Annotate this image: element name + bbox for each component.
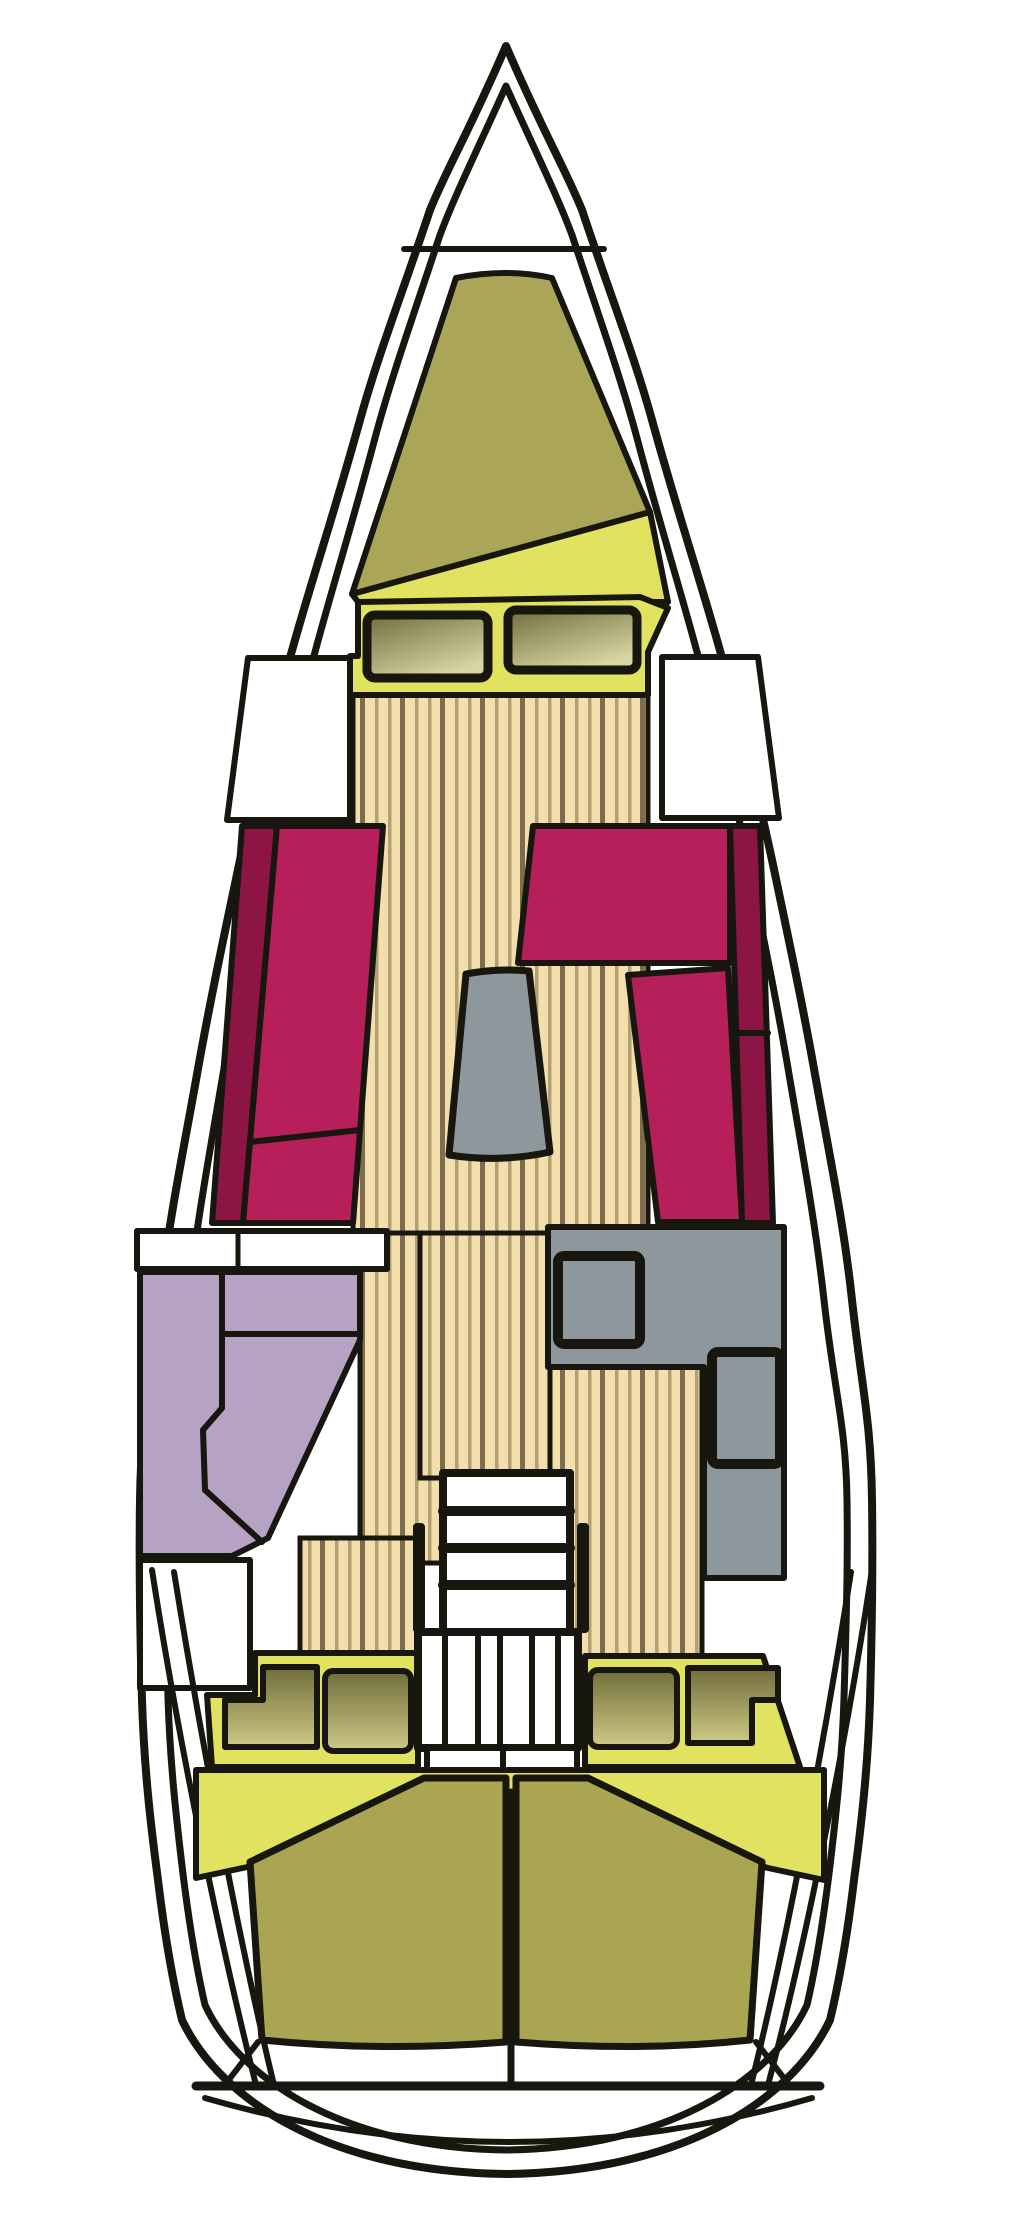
floorplan-svg [0, 0, 1024, 2232]
salon-table [449, 970, 550, 1158]
galley-stove [712, 1352, 780, 1464]
head-aft-locker [140, 1560, 250, 1688]
stairs-rail-starboard [577, 1523, 589, 1633]
galley-sink [558, 1256, 640, 1344]
settee-starboard-head [518, 826, 730, 963]
aft-cabins [196, 1770, 824, 2086]
boat-floorplan-diagram [0, 0, 1024, 2232]
aft-seat-port-inner [325, 1671, 411, 1751]
companionway-stairs [413, 1473, 589, 1771]
locker-starboard [662, 657, 779, 818]
deck-hatch-port [367, 615, 488, 678]
aft-seat-starboard-inner [590, 1670, 677, 1747]
deck-hatch-starboard [508, 610, 637, 670]
stairs-rail-port [413, 1523, 425, 1633]
locker-port [227, 658, 350, 820]
head-forward-shelf [137, 1231, 387, 1269]
